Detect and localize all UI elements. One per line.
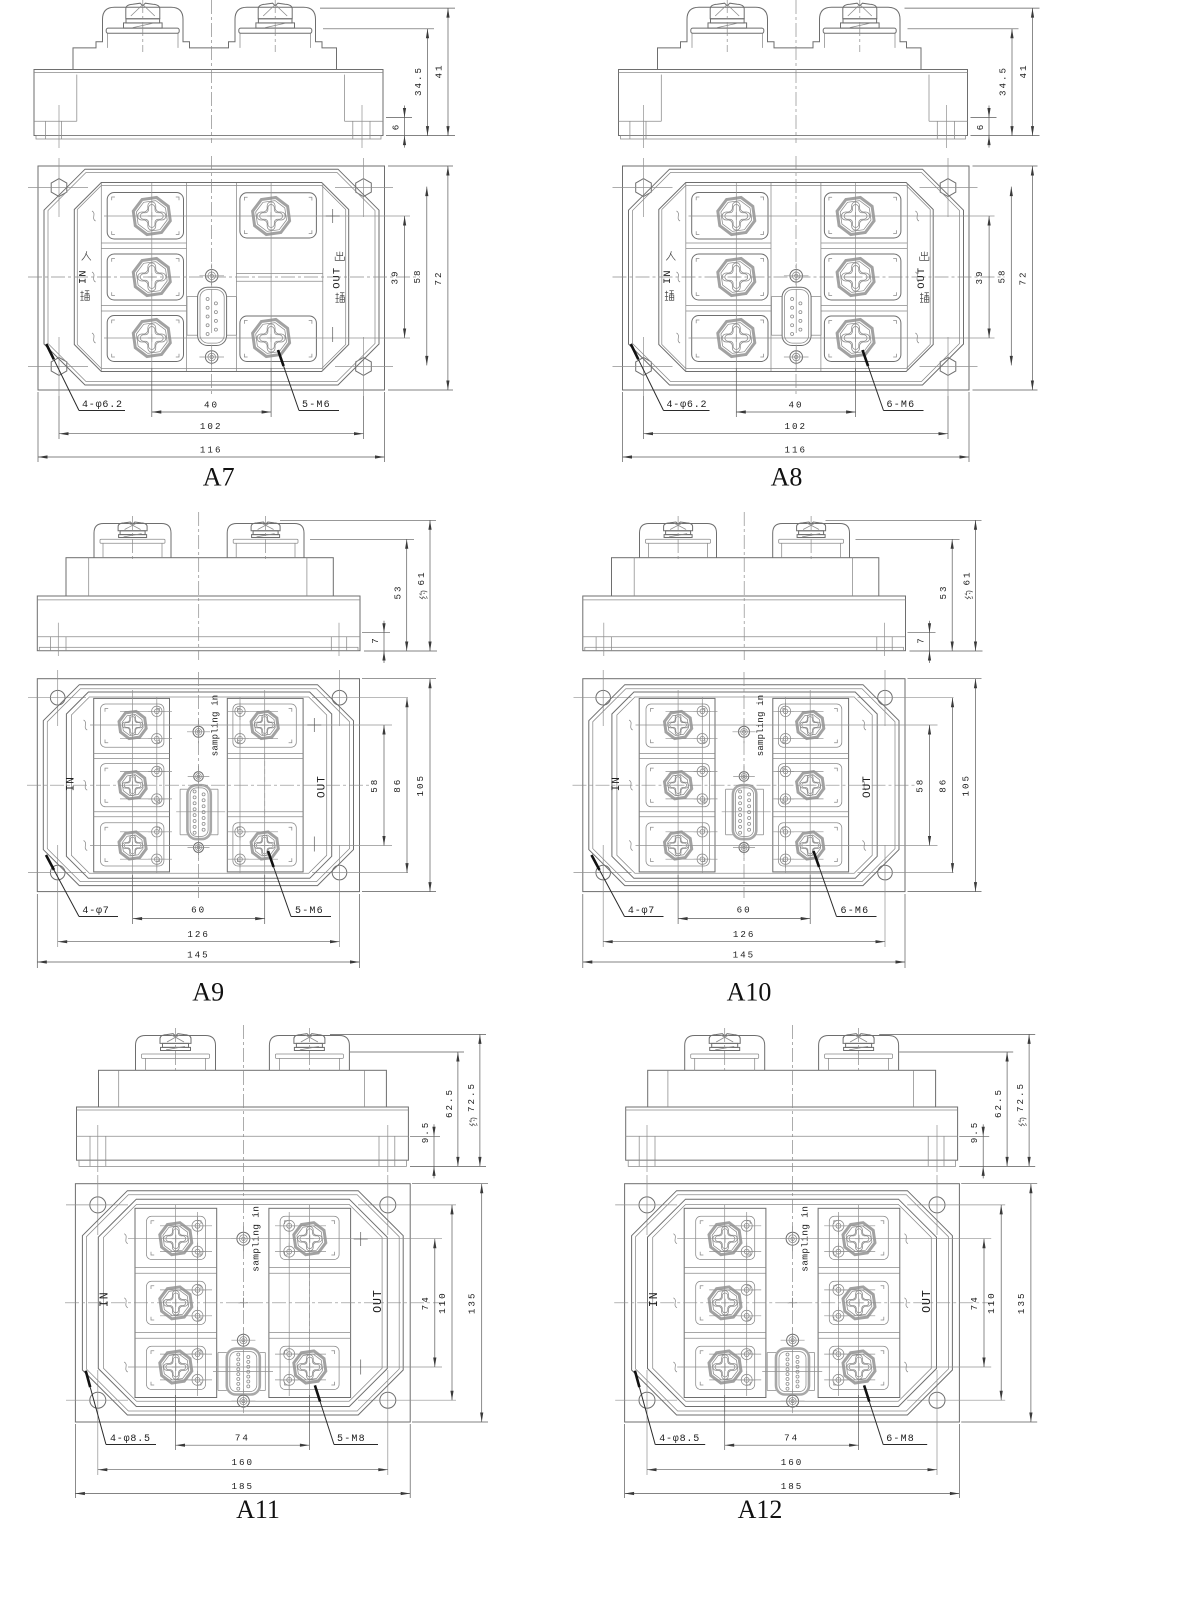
svg-text:62.5: 62.5 (993, 1088, 1004, 1118)
svg-text:sampling in: sampling in (211, 695, 221, 757)
svg-text:58: 58 (915, 778, 926, 793)
svg-text:74: 74 (969, 1295, 980, 1310)
svg-text:185: 185 (232, 1481, 255, 1492)
svg-text:39: 39 (390, 269, 401, 284)
svg-text:105: 105 (961, 774, 972, 797)
svg-text:126: 126 (187, 929, 210, 940)
svg-text:34.5: 34.5 (998, 66, 1009, 96)
svg-text:OUT: OUT (916, 267, 928, 289)
svg-text:72.5: 72.5 (1015, 1082, 1026, 1112)
svg-text:39: 39 (974, 269, 985, 284)
svg-text:A11: A11 (236, 1495, 280, 1524)
svg-text:A8: A8 (771, 463, 803, 492)
svg-text:A9: A9 (192, 977, 224, 1006)
svg-text:41: 41 (434, 63, 445, 78)
svg-text:116: 116 (785, 445, 808, 456)
svg-text:6-M6: 6-M6 (841, 906, 870, 917)
svg-text:6: 6 (391, 123, 402, 131)
svg-text:4-φ7: 4-φ7 (628, 906, 655, 917)
svg-text:72: 72 (1017, 270, 1028, 285)
svg-text:7: 7 (916, 636, 927, 644)
svg-text:OUT: OUT (862, 775, 874, 798)
svg-text:A12: A12 (738, 1495, 783, 1524)
svg-text:OUT: OUT (921, 1289, 934, 1313)
svg-text:60: 60 (737, 905, 752, 916)
svg-text:185: 185 (781, 1481, 804, 1492)
svg-text:58: 58 (369, 778, 380, 793)
svg-text:IN: IN (78, 269, 90, 284)
svg-text:4-φ8.5: 4-φ8.5 (659, 1434, 700, 1445)
svg-text:58: 58 (996, 268, 1007, 283)
svg-text:145: 145 (733, 949, 756, 960)
svg-text:53: 53 (393, 584, 404, 599)
svg-text:5-M6: 5-M6 (302, 400, 331, 411)
svg-text:7: 7 (370, 636, 381, 644)
svg-text:9.5: 9.5 (969, 1121, 980, 1144)
svg-text:40: 40 (204, 400, 219, 411)
svg-text:4-φ6.2: 4-φ6.2 (667, 400, 708, 411)
svg-text:5-M8: 5-M8 (337, 1434, 366, 1445)
svg-text:6: 6 (975, 123, 986, 131)
svg-text:102: 102 (785, 421, 808, 432)
svg-text:160: 160 (781, 1457, 804, 1468)
svg-text:IN: IN (99, 1291, 112, 1307)
svg-text:5-M6: 5-M6 (295, 906, 324, 917)
svg-text:IN: IN (648, 1291, 661, 1307)
svg-text:116: 116 (200, 445, 223, 456)
svg-text:9.5: 9.5 (420, 1121, 431, 1144)
svg-text:110: 110 (437, 1291, 448, 1314)
svg-text:A7: A7 (203, 463, 235, 492)
svg-text:4-φ8.5: 4-φ8.5 (110, 1434, 151, 1445)
svg-text:72: 72 (433, 270, 444, 285)
svg-text:IN: IN (66, 776, 78, 791)
svg-text:A10: A10 (727, 977, 772, 1006)
svg-text:58: 58 (412, 268, 423, 283)
svg-text:53: 53 (938, 584, 949, 599)
svg-text:6-M6: 6-M6 (887, 400, 916, 411)
svg-text:IN: IN (662, 269, 674, 284)
svg-text:40: 40 (788, 400, 803, 411)
svg-text:145: 145 (187, 949, 210, 960)
svg-text:110: 110 (986, 1291, 997, 1314)
svg-text:41: 41 (1018, 63, 1029, 78)
svg-text:OUT: OUT (372, 1289, 385, 1313)
svg-text:126: 126 (733, 929, 756, 940)
svg-text:74: 74 (235, 1433, 250, 1444)
svg-text:105: 105 (415, 774, 426, 797)
svg-text:86: 86 (392, 778, 403, 793)
svg-text:62.5: 62.5 (444, 1088, 455, 1118)
svg-text:IN: IN (611, 776, 623, 791)
svg-text:135: 135 (467, 1292, 478, 1315)
svg-text:160: 160 (232, 1457, 255, 1468)
svg-text:86: 86 (938, 778, 949, 793)
svg-text:135: 135 (1016, 1292, 1027, 1315)
svg-text:72.5: 72.5 (466, 1082, 477, 1112)
svg-text:6-M8: 6-M8 (886, 1434, 915, 1445)
svg-text:OUT: OUT (331, 267, 343, 289)
svg-text:60: 60 (191, 905, 206, 916)
svg-text:sampling in: sampling in (756, 695, 766, 757)
svg-text:4-φ7: 4-φ7 (82, 906, 109, 917)
svg-text:4-φ6.2: 4-φ6.2 (82, 400, 123, 411)
svg-text:102: 102 (200, 421, 223, 432)
svg-text:OUT: OUT (317, 775, 329, 798)
svg-text:74: 74 (784, 1433, 799, 1444)
svg-text:61: 61 (962, 570, 973, 585)
svg-text:34.5: 34.5 (413, 66, 424, 96)
svg-text:74: 74 (420, 1295, 431, 1310)
svg-text:61: 61 (416, 570, 427, 585)
